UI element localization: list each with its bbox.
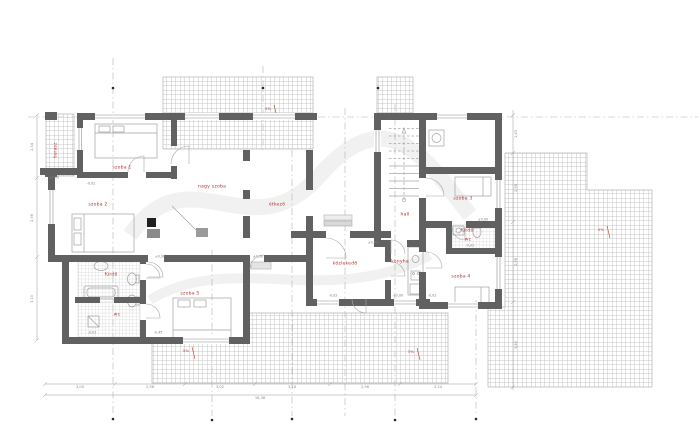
window-icon xyxy=(448,302,478,309)
window-icon xyxy=(394,299,416,306)
bed-icon xyxy=(95,124,157,158)
window-icon xyxy=(253,113,295,120)
terrace-right xyxy=(488,153,652,387)
door-icon xyxy=(148,262,163,277)
door-icon xyxy=(391,240,405,254)
bed-icon xyxy=(455,287,489,303)
terrace-left-strip xyxy=(46,114,74,176)
door-icon xyxy=(128,156,144,172)
window-icon xyxy=(495,257,502,289)
flue-icon xyxy=(147,229,160,238)
terrace-bottom xyxy=(152,313,448,383)
window-icon xyxy=(317,299,339,306)
bed-icon xyxy=(173,298,231,338)
window-icon xyxy=(77,128,83,150)
window-icon xyxy=(95,113,145,120)
window-icon xyxy=(185,113,219,120)
chimney-icon xyxy=(147,218,156,227)
door-icon xyxy=(146,304,160,318)
table-icon xyxy=(196,228,208,237)
bed-icon xyxy=(72,214,134,252)
floor-plan-drawing xyxy=(0,0,700,426)
washing-machine-icon xyxy=(429,130,444,146)
window-icon xyxy=(48,190,55,224)
window-icon xyxy=(495,180,502,208)
terrace-top-right xyxy=(377,77,413,113)
window-icon xyxy=(374,130,381,152)
door-icon xyxy=(326,238,346,258)
floor-plan-canvas: teraszszoba 1szoba 2nagy szobaétkezőközl… xyxy=(0,0,700,426)
window-icon xyxy=(183,337,229,344)
window-icon xyxy=(437,113,467,120)
